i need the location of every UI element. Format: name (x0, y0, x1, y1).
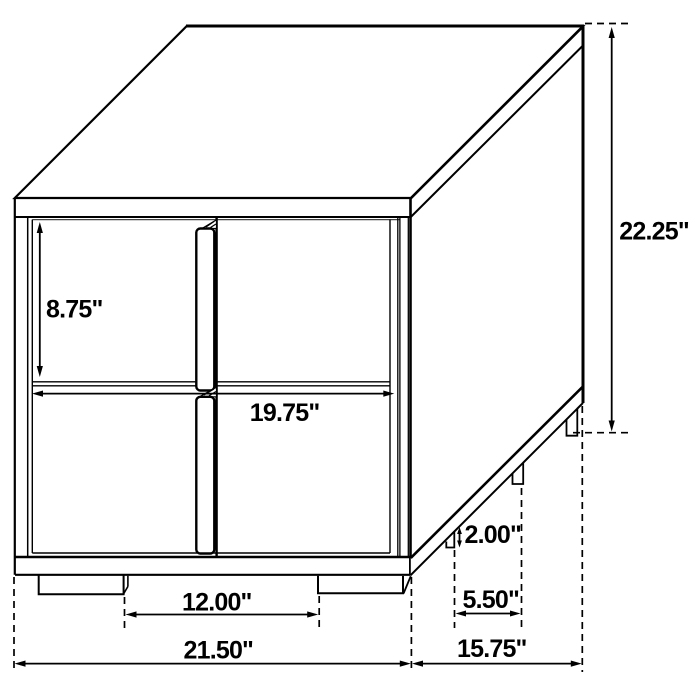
svg-text:8.75": 8.75" (46, 296, 103, 324)
svg-text:12.00": 12.00" (182, 589, 252, 617)
svg-text:15.75": 15.75" (457, 635, 527, 663)
svg-text:5.50": 5.50" (463, 586, 520, 614)
svg-text:2.00": 2.00" (465, 521, 522, 549)
svg-text:19.75": 19.75" (250, 399, 320, 427)
svg-text:21.50": 21.50" (184, 637, 254, 665)
svg-text:22.25": 22.25" (619, 217, 689, 245)
